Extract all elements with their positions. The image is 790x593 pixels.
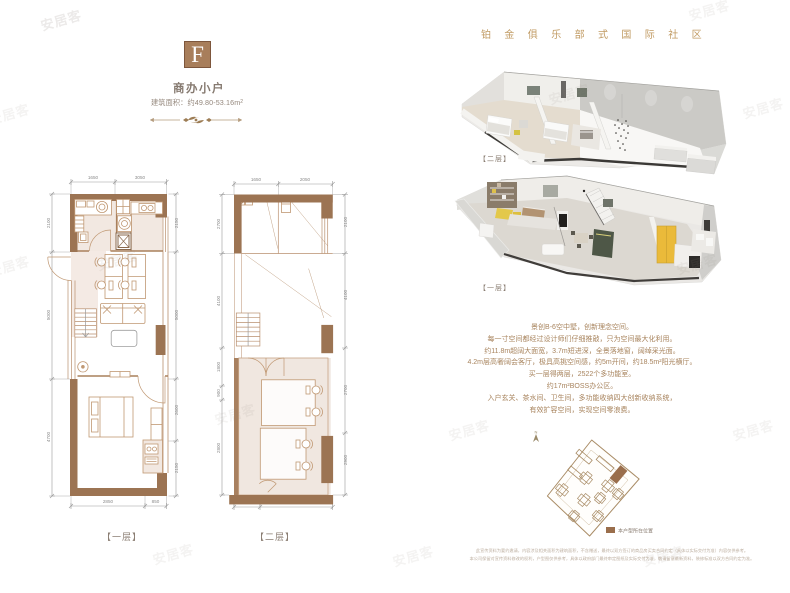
svg-text:2600: 2600 [174,404,179,415]
svg-text:5000: 5000 [46,309,51,320]
svg-text:4100: 4100 [216,295,221,306]
svg-text:2900: 2900 [343,454,348,465]
svg-text:N: N [535,430,538,435]
svg-text:900: 900 [216,389,221,397]
svg-text:2850: 2850 [103,499,114,504]
svg-text:2700: 2700 [216,218,221,229]
svg-text:2100: 2100 [343,216,348,227]
svg-text:1650: 1650 [251,177,262,182]
svg-text:2150: 2150 [174,462,179,473]
svg-text:【二层】: 【二层】 [255,532,295,542]
svg-text:2100: 2100 [46,217,51,228]
svg-text:2700: 2700 [343,384,348,395]
svg-text:4700: 4700 [46,431,51,442]
svg-text:4100: 4100 [343,289,348,300]
svg-text:850: 850 [152,499,160,504]
svg-text:2050: 2050 [300,177,311,182]
svg-text:3050: 3050 [135,175,146,180]
svg-text:本户型所在位置: 本户型所在位置 [618,528,653,535]
svg-text:【一层】: 【一层】 [102,532,142,542]
svg-text:1650: 1650 [88,175,99,180]
svg-text:2800: 2800 [216,442,221,453]
svg-text:1800: 1800 [216,361,221,372]
svg-text:5000: 5000 [174,309,179,320]
svg-text:2150: 2150 [174,217,179,228]
